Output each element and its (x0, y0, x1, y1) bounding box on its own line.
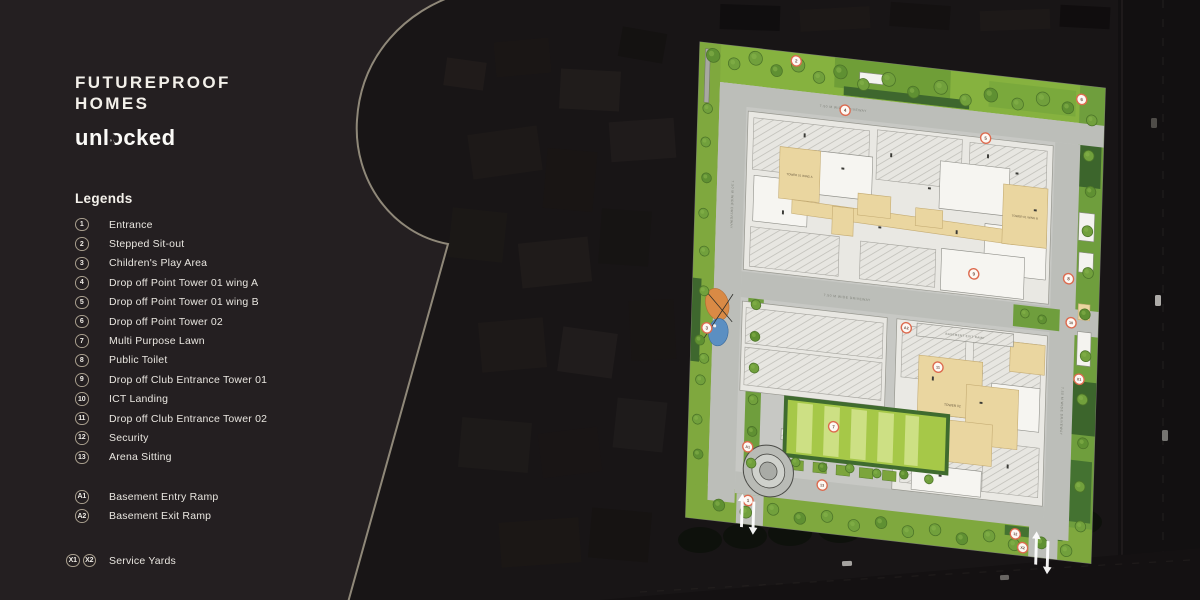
legend-badge-icon: 3 (75, 257, 89, 271)
adjacent-road-right (1118, 0, 1200, 600)
legend-item: 3Children's Play Area (75, 254, 267, 273)
svg-text:13: 13 (820, 483, 824, 488)
legend-item: X1X2Service Yards (75, 551, 267, 570)
legend-item: 11Drop off Club Entrance Tower 02 (75, 409, 267, 428)
legend-item: 9Drop off Club Entrance Tower 01 (75, 370, 267, 389)
brand-logo: FUTUREPROOF HOMES unlocked (75, 72, 231, 151)
map-marker-3: 3 (702, 322, 712, 333)
legend-badge-icon: 2 (75, 237, 89, 251)
legend-item-label: Drop off Point Tower 01 wing B (109, 296, 259, 308)
map-marker-5: 5 (980, 132, 990, 143)
map-marker-7: 7 (828, 421, 838, 432)
legend-badge-icon: 5 (75, 296, 89, 310)
legend-item: 2Stepped Sit-out (75, 234, 267, 253)
legend-item: 7Multi Purpose Lawn (75, 331, 267, 350)
legend-item-label: Drop off Point Tower 02 (109, 316, 223, 328)
legend-badge-icon: 6 (75, 315, 89, 329)
legend-badge-icon: X1 (66, 554, 80, 568)
legend-badge-icon: 13 (75, 451, 89, 465)
legend-item-label: Arena Sitting (109, 451, 172, 463)
svg-text:12: 12 (1013, 532, 1017, 537)
legend-item-label: Drop off Club Entrance Tower 02 (109, 413, 267, 425)
svg-text:11: 11 (936, 365, 940, 369)
legend-badge-icon: 8 (75, 354, 89, 368)
legend-item-label: Stepped Sit-out (109, 238, 184, 250)
car (842, 561, 852, 567)
map-marker-8: 8 (1063, 273, 1073, 284)
legend-service-list: X1X2Service Yards (75, 551, 267, 570)
legend-item: A1Basement Entry Ramp (75, 487, 267, 506)
svg-text:X1: X1 (1077, 377, 1082, 382)
legend-item-label: Drop off Point Tower 01 wing A (109, 277, 258, 289)
legend-list: 1Entrance2Stepped Sit-out3Children's Pla… (75, 215, 267, 467)
brand-tagline: unlocked (75, 125, 231, 151)
legend-badge-icon: X2 (83, 554, 97, 568)
map-marker-12: 12 (1010, 528, 1020, 539)
legend-item: 13Arena Sitting (75, 448, 267, 467)
legend-item-label: ICT Landing (109, 393, 168, 405)
car (1151, 118, 1157, 128)
brand-line-1: FUTUREPROOF (75, 72, 231, 93)
svg-text:A1: A1 (745, 445, 750, 450)
legend-panel: Legends 1Entrance2Stepped Sit-out3Childr… (75, 191, 267, 570)
legend-badge-icon: 4 (75, 276, 89, 290)
map-marker-4: 4 (840, 104, 850, 115)
legend-item: A2Basement Exit Ramp (75, 506, 267, 525)
legend-badge-icon: A1 (75, 490, 89, 504)
legend-ramp-list: A1Basement Entry RampA2Basement Exit Ram… (75, 487, 267, 526)
legend-badge-icon: 10 (75, 392, 89, 406)
brand-panel: FUTUREPROOF HOMES unlocked Legends 1Entr… (0, 0, 430, 600)
legend-item: 8Public Toilet (75, 351, 267, 370)
legend-item-label: Drop off Club Entrance Tower 01 (109, 374, 267, 386)
map-marker-6: 6 (1077, 94, 1087, 105)
legend-item: 1Entrance (75, 215, 267, 234)
legend-item: 6Drop off Point Tower 02 (75, 312, 267, 331)
legend-badge-icon: 7 (75, 334, 89, 348)
legend-item-label: Entrance (109, 219, 153, 231)
car (1155, 295, 1161, 306)
legend-badge-icon: 12 (75, 431, 89, 445)
map-marker-10: 10 (1066, 317, 1076, 328)
svg-text:A2: A2 (904, 326, 909, 331)
svg-text:10: 10 (1069, 321, 1073, 326)
legend-item: 4Drop off Point Tower 01 wing A (75, 273, 267, 292)
map-marker-11: 11 (933, 361, 943, 372)
svg-text:X2: X2 (1020, 546, 1025, 551)
parking-block (740, 301, 887, 407)
legend-title: Legends (75, 191, 267, 206)
brand-line-2: HOMES (75, 93, 231, 114)
legend-item-label: Multi Purpose Lawn (109, 335, 205, 347)
legend-item-label: Basement Exit Ramp (109, 510, 211, 522)
legend-badge-icon: 11 (75, 412, 89, 426)
legend-badge-icon: 9 (75, 373, 89, 387)
car (1162, 430, 1168, 441)
legend-item-label: Public Toilet (109, 354, 167, 366)
legend-item: 5Drop off Point Tower 01 wing B (75, 293, 267, 312)
legend-item-label: Children's Play Area (109, 257, 207, 269)
legend-item: 12Security (75, 428, 267, 447)
keyhole-icon (108, 133, 117, 145)
map-marker-13: 13 (817, 479, 827, 490)
site-plan: 7.50 M WIDE DRIVEWAY 7.50 M WIDE DRIVEWA… (685, 42, 1105, 579)
map-marker-X2: X2 (1017, 542, 1027, 553)
legend-badge-icon: 1 (75, 218, 89, 232)
legend-badge-icon: A2 (75, 509, 89, 523)
legend-item: 10ICT Landing (75, 390, 267, 409)
map-marker-X1: X1 (1074, 374, 1084, 385)
map-marker-A2: A2 (901, 322, 911, 333)
legend-item-label: Service Yards (109, 555, 176, 567)
map-marker-A1: A1 (743, 441, 753, 452)
car (1000, 575, 1009, 580)
legend-item-label: Basement Entry Ramp (109, 491, 218, 503)
legend-item-label: Security (109, 432, 149, 444)
map-marker-9: 9 (969, 268, 979, 279)
map-marker-2: 2 (791, 55, 801, 66)
